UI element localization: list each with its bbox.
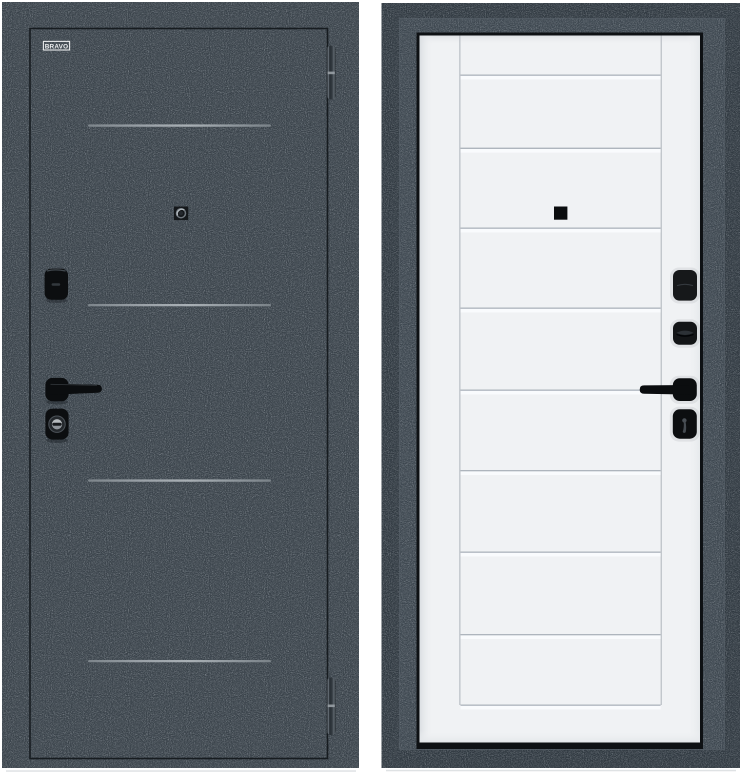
svg-text:BRAVO: BRAVO xyxy=(45,43,69,50)
